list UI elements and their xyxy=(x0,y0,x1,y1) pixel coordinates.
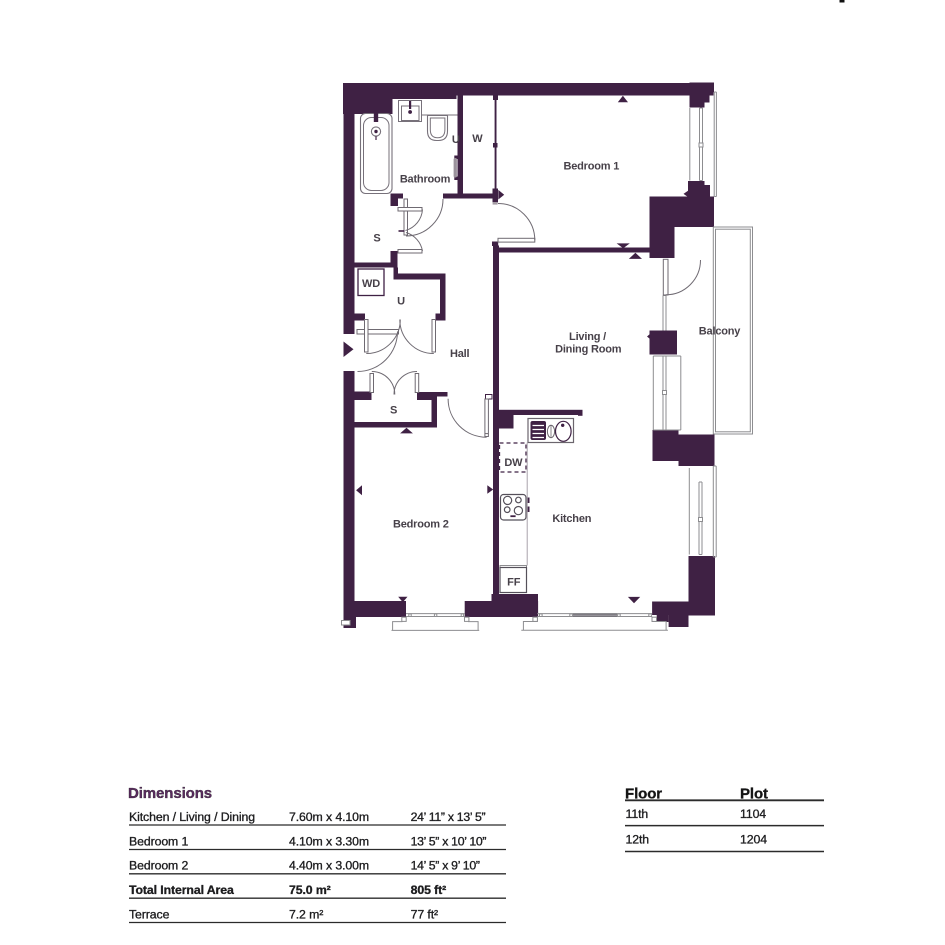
svg-text:11th: 11th xyxy=(626,807,649,821)
svg-text:Hall: Hall xyxy=(450,348,470,360)
svg-text:75.0 m²: 75.0 m² xyxy=(289,883,331,897)
svg-text:Bathroom: Bathroom xyxy=(400,174,451,186)
svg-text:Bedroom 1: Bedroom 1 xyxy=(129,834,189,848)
svg-text:4.40m x 3.00m: 4.40m x 3.00m xyxy=(289,859,369,873)
svg-text:Bedroom 1: Bedroom 1 xyxy=(563,161,619,173)
svg-text:1104: 1104 xyxy=(740,807,766,821)
svg-text:12th: 12th xyxy=(626,833,650,847)
svg-text:Bedroom 2: Bedroom 2 xyxy=(393,519,449,531)
svg-text:S: S xyxy=(373,233,380,245)
svg-text:Balcony: Balcony xyxy=(699,325,741,337)
svg-text:7.2 m²: 7.2 m² xyxy=(289,907,323,921)
svg-text:13’ 5” x 10’ 10”: 13’ 5” x 10’ 10” xyxy=(411,834,487,848)
svg-text:Total Internal Area: Total Internal Area xyxy=(129,883,234,897)
svg-text:Dining Room: Dining Room xyxy=(555,344,622,356)
svg-text:805 ft²: 805 ft² xyxy=(411,883,447,897)
svg-text:Living /: Living / xyxy=(569,331,606,343)
svg-text:Floor: Floor xyxy=(625,785,662,802)
svg-text:24’ 11” x 13’ 5”: 24’ 11” x 13’ 5” xyxy=(411,810,486,824)
svg-text:U: U xyxy=(452,134,460,146)
svg-text:W: W xyxy=(472,133,483,145)
svg-text:4.10m x 3.30m: 4.10m x 3.30m xyxy=(289,834,369,848)
svg-text:Terrace: Terrace xyxy=(129,907,170,921)
svg-text:Plot: Plot xyxy=(740,785,768,802)
svg-text:7.60m x 4.10m: 7.60m x 4.10m xyxy=(289,810,369,824)
svg-text:Kitchen / Living / Dining: Kitchen / Living / Dining xyxy=(129,810,255,824)
svg-text:WD: WD xyxy=(362,278,380,290)
svg-text:U: U xyxy=(397,296,405,308)
svg-text:Kitchen: Kitchen xyxy=(552,513,591,525)
svg-text:DW: DW xyxy=(504,457,523,469)
svg-text:Dimensions: Dimensions xyxy=(128,785,212,802)
svg-text:1204: 1204 xyxy=(740,833,767,847)
svg-text:77 ft²: 77 ft² xyxy=(411,907,438,921)
svg-text:Bedroom 2: Bedroom 2 xyxy=(129,859,189,873)
svg-text:S: S xyxy=(390,405,397,417)
svg-text:FF: FF xyxy=(507,577,521,589)
svg-text:14’ 5” x 9’ 10”: 14’ 5” x 9’ 10” xyxy=(411,859,480,873)
